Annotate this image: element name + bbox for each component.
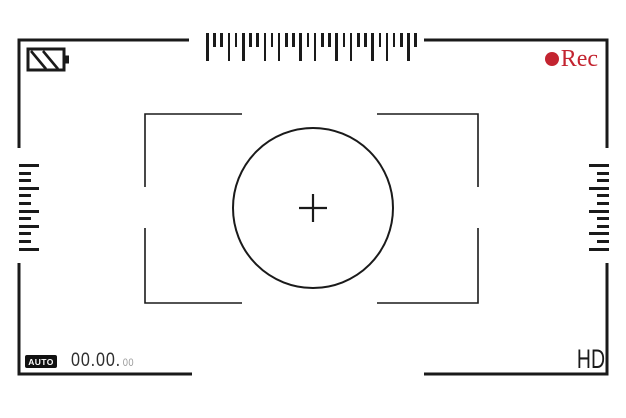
ruler-tick-long: [314, 33, 317, 61]
rec-label: Rec: [561, 48, 598, 70]
ruler-tick-long: [589, 232, 609, 235]
ruler-tick-long: [386, 33, 389, 61]
ruler-tick-short: [213, 33, 216, 47]
ruler-tick-short: [597, 194, 609, 197]
ruler-tick-short: [328, 33, 331, 47]
rec-indicator: Rec: [545, 48, 598, 70]
ruler-tick-long: [228, 33, 231, 61]
ruler-tick-long: [299, 33, 302, 61]
battery-icon: [26, 47, 70, 73]
ruler-tick-long: [19, 225, 39, 228]
ruler-tick-long: [278, 33, 281, 61]
ruler-tick-short: [19, 217, 31, 220]
ruler-tick-short: [597, 217, 609, 220]
ruler-tick-long: [264, 33, 267, 61]
crosshair-icon: [299, 194, 327, 222]
ruler-tick-short: [19, 232, 31, 235]
ruler-tick-long: [589, 187, 609, 190]
top-exposure-ruler: [206, 33, 417, 61]
ruler-tick-short: [220, 33, 223, 47]
ruler-tick-short: [307, 33, 310, 47]
hd-quality-label: HD: [577, 344, 605, 375]
ruler-tick-long: [589, 164, 609, 167]
ruler-tick-long: [371, 33, 374, 61]
ruler-tick-short: [235, 33, 238, 47]
ruler-tick-short: [379, 33, 382, 47]
ruler-tick-short: [256, 33, 259, 47]
ruler-tick-long: [407, 33, 410, 61]
ruler-tick-short: [285, 33, 288, 47]
camera-viewfinder-screen: Rec AUTO 00.00. 00 HD: [0, 0, 626, 418]
ruler-tick-long: [19, 210, 39, 213]
ruler-tick-long: [589, 248, 609, 251]
ruler-tick-short: [249, 33, 252, 47]
ruler-tick-short: [357, 33, 360, 47]
auto-mode-badge: AUTO: [25, 355, 57, 368]
ruler-tick-short: [364, 33, 367, 47]
ruler-tick-long: [19, 248, 39, 251]
ruler-tick-long: [350, 33, 353, 61]
ruler-tick-short: [321, 33, 324, 47]
timecode-display: 00.00. 00: [71, 350, 134, 372]
ruler-tick-short: [19, 179, 31, 182]
left-scale-ruler: [19, 164, 39, 251]
ruler-tick-short: [597, 240, 609, 243]
right-scale-ruler: [589, 164, 609, 251]
ruler-tick-long: [242, 33, 245, 61]
ruler-tick-short: [597, 179, 609, 182]
ruler-tick-short: [400, 33, 403, 47]
ruler-tick-short: [597, 202, 609, 205]
ruler-tick-short: [343, 33, 346, 47]
ruler-tick-long: [206, 33, 209, 61]
ruler-tick-short: [271, 33, 274, 47]
ruler-tick-short: [19, 240, 31, 243]
ruler-tick-short: [19, 172, 31, 175]
timecode-main: 00.00.: [71, 350, 121, 372]
ruler-tick-short: [292, 33, 295, 47]
ruler-tick-long: [589, 210, 609, 213]
ruler-tick-short: [414, 33, 417, 47]
timecode-frames: 00: [123, 357, 134, 369]
ruler-tick-short: [393, 33, 396, 47]
ruler-tick-short: [19, 194, 31, 197]
auto-mode-label: AUTO: [28, 357, 54, 367]
ruler-tick-short: [597, 225, 609, 228]
ruler-tick-short: [597, 172, 609, 175]
ruler-tick-long: [19, 187, 39, 190]
ruler-tick-short: [19, 202, 31, 205]
ruler-tick-long: [19, 164, 39, 167]
rec-dot-icon: [545, 52, 559, 66]
ruler-tick-long: [335, 33, 338, 61]
